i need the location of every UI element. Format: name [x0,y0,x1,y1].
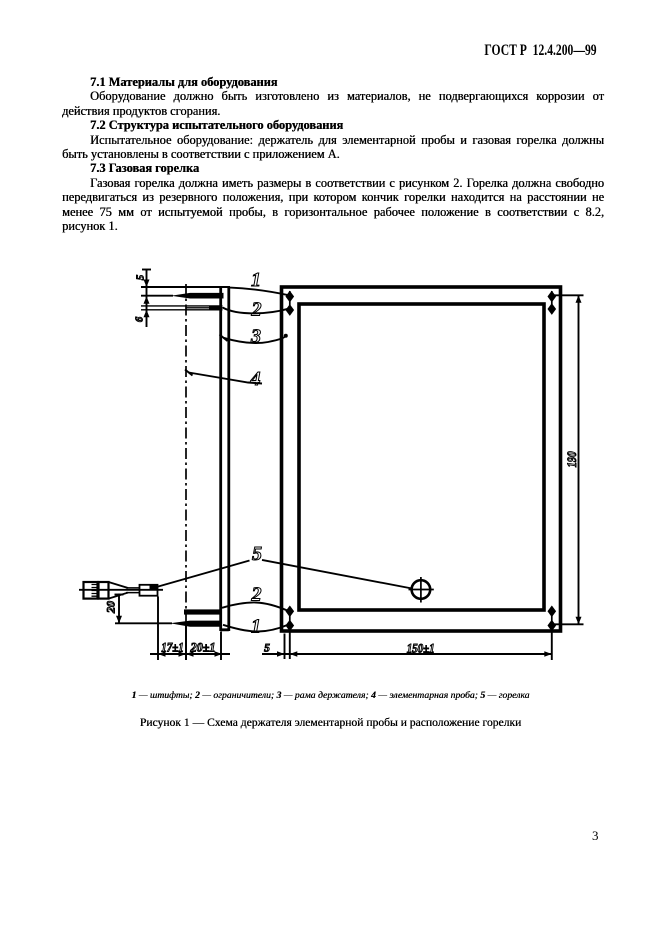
svg-text:17±1: 17±1 [161,641,184,655]
svg-text:5: 5 [252,543,262,565]
svg-text:1: 1 [251,616,261,638]
svg-text:20: 20 [106,601,118,614]
svg-text:5: 5 [264,643,270,655]
svg-text:6: 6 [135,316,146,322]
svg-text:190: 190 [565,451,579,468]
svg-text:3: 3 [250,326,261,348]
svg-text:150±1: 150±1 [407,642,435,656]
svg-text:2: 2 [251,584,262,606]
svg-text:2: 2 [251,299,262,321]
svg-text:4: 4 [250,368,261,390]
svg-text:1: 1 [251,269,261,291]
svg-text:20±1: 20±1 [190,641,216,655]
svg-text:5: 5 [136,275,147,280]
